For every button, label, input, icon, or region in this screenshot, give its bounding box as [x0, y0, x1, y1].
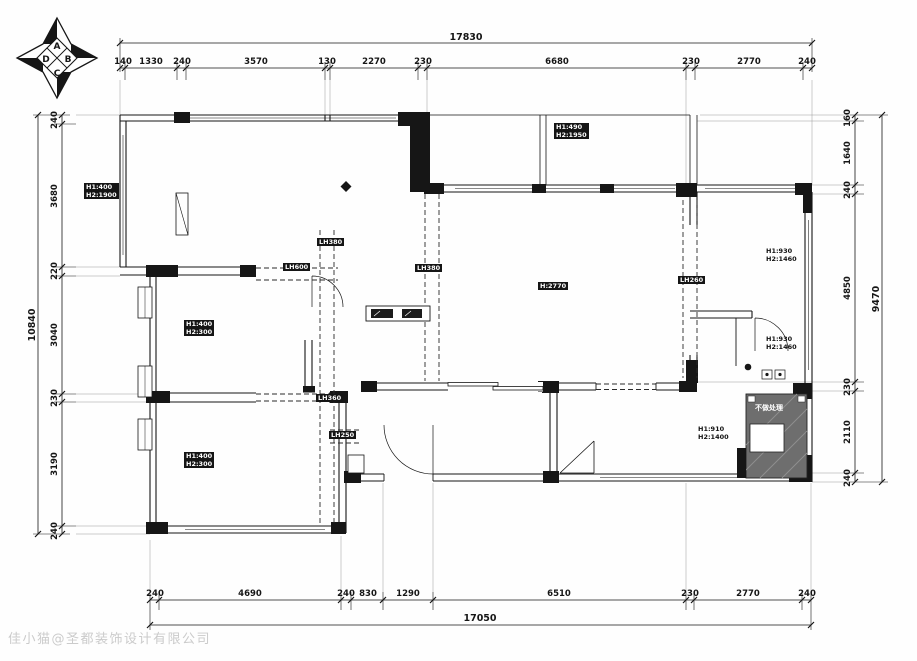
dimension-chain-top	[117, 38, 815, 185]
dim-seg: 2110	[843, 420, 853, 444]
dim-seg: 240	[173, 57, 191, 67]
label-line: H2:1950	[556, 131, 587, 139]
label-line: H1:910	[698, 426, 729, 434]
dim-seg: 2270	[362, 57, 386, 67]
dimension-labels-bottom: 17050 240 4690 240 830 1290 6510 230 277…	[146, 589, 816, 624]
dim-seg: 6510	[547, 589, 571, 599]
floor-plan-page: A B C D 17830 140 1330 240 3570 130 2270…	[0, 0, 917, 661]
compass-letter-b: B	[65, 55, 72, 65]
dim-total-left: 10840	[27, 308, 38, 341]
beam-label: LH250	[329, 431, 356, 439]
appliance-symbol	[366, 306, 430, 321]
dimension-labels-right: 9470 160 1640 240 4850 230 2110 240	[843, 109, 882, 487]
hatch-fixture	[750, 424, 784, 452]
sliding-door	[448, 383, 498, 387]
dimension-labels-left: 10840 240 3680 220 3040 230 3190 240	[27, 111, 60, 540]
dim-seg: 3040	[50, 323, 60, 347]
drain-icon	[745, 364, 752, 371]
beam-label: LH600	[283, 263, 310, 271]
hatch-note-label: 不做处理	[755, 403, 783, 413]
stair-corner	[560, 441, 594, 473]
label-line: H1:490	[556, 123, 587, 131]
label-line: H2:300	[186, 460, 212, 468]
dim-seg: 240	[50, 111, 60, 129]
walls	[120, 115, 812, 534]
compass-rose: A B C D	[17, 18, 97, 98]
beam-label: LH360	[316, 394, 343, 402]
compass-letter-c: C	[54, 69, 61, 79]
dim-seg: 1330	[139, 57, 163, 67]
dim-total-bottom: 17050	[463, 613, 496, 624]
label-line: H2:1460	[766, 344, 797, 352]
label-line: H2:1400	[698, 434, 729, 442]
window-height-label-left: H1:400 H2:1900	[84, 183, 119, 199]
label-line: H2:1460	[766, 256, 797, 264]
label-line: H2:300	[186, 328, 212, 336]
dim-seg: 1290	[396, 589, 420, 599]
label-line: H2:1900	[86, 191, 117, 199]
dim-seg: 6680	[545, 57, 569, 67]
sliding-door	[493, 387, 543, 391]
dim-seg: 2770	[736, 589, 760, 599]
dim-seg: 4850	[843, 276, 853, 300]
floor-plan-drawing: A B C D 17830 140 1330 240 3570 130 2270…	[0, 0, 917, 661]
label-line: H1:400	[186, 452, 212, 460]
window-height-label-right-lower: H1:930 H2:1460	[766, 336, 797, 352]
dimension-labels-top: 17830 140 1330 240 3570 130 2270 230 668…	[114, 32, 816, 67]
dim-seg: 240	[798, 57, 816, 67]
dim-seg: 2770	[737, 57, 761, 67]
dim-seg: 230	[681, 589, 699, 599]
beam-label: LH380	[317, 238, 344, 246]
label-line: H1:930	[766, 336, 797, 344]
dim-seg: 3570	[244, 57, 268, 67]
label-line: H1:930	[766, 248, 797, 256]
dim-seg: 830	[359, 589, 377, 599]
label-line: H1:400	[86, 183, 117, 191]
dim-seg: 230	[682, 57, 700, 67]
dim-seg: 1640	[843, 141, 853, 165]
dim-seg: 240	[843, 181, 853, 199]
dim-seg: 240	[337, 589, 355, 599]
dim-seg: 240	[843, 469, 853, 487]
column-step	[348, 455, 364, 473]
dim-seg: 3680	[50, 184, 60, 208]
dim-seg: 240	[146, 589, 164, 599]
dim-seg: 140	[114, 57, 132, 67]
dim-seg: 230	[50, 389, 60, 407]
compass-letter-d: D	[42, 55, 49, 65]
dim-total-right: 9470	[871, 285, 882, 312]
label-line: H1:400	[186, 320, 212, 328]
beam-label: LH380	[415, 264, 442, 272]
dim-seg: 3190	[50, 452, 60, 476]
dim-seg: 130	[318, 57, 336, 67]
dim-seg: 240	[798, 589, 816, 599]
dim-seg: 230	[414, 57, 432, 67]
bay-label-left-upper: H1:400 H2:300	[184, 320, 214, 336]
ceiling-light-icon	[341, 181, 352, 192]
dim-total-top: 17830	[449, 32, 482, 43]
watermark: 佳小猫@圣都装饰设计有限公司	[8, 628, 211, 647]
window-height-label-right-upper: H1:930 H2:1460	[766, 248, 797, 264]
beam-label: LH260	[678, 276, 705, 284]
plan-symbols	[341, 181, 786, 379]
window-glazing	[123, 118, 809, 530]
structural-columns	[146, 112, 812, 534]
dim-seg: 160	[843, 109, 853, 127]
bay-label-left-lower: H1:400 H2:300	[184, 452, 214, 468]
dim-seg: 240	[50, 522, 60, 540]
window-height-label-top: H1:490 H2:1950	[554, 123, 589, 139]
dim-seg: 220	[50, 262, 60, 280]
ceiling-height-label: H:2770	[538, 282, 568, 290]
dim-seg: 4690	[238, 589, 262, 599]
dim-seg: 230	[843, 378, 853, 396]
window-height-label-bottom: H1:910 H2:1400	[698, 426, 729, 442]
compass-letter-a: A	[54, 42, 61, 52]
dimension-chain-bottom	[147, 483, 814, 630]
